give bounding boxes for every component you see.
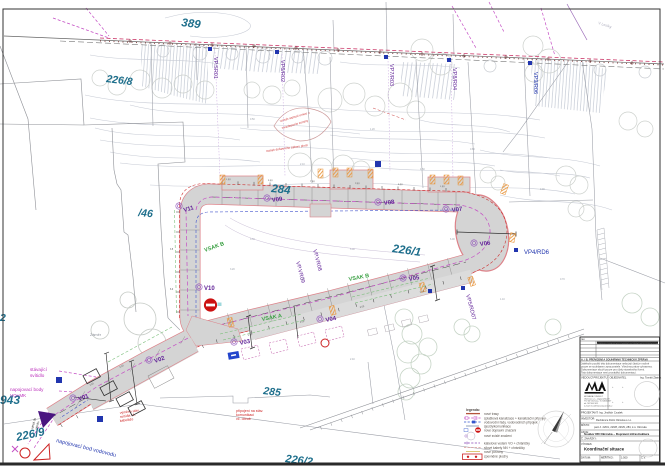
- svg-text:rev.: rev.: [581, 337, 585, 341]
- svg-text:svítidlo: svítidlo: [30, 373, 45, 378]
- svg-text:VÝKRES:: VÝKRES:: [581, 442, 593, 446]
- svg-text:VP4/RD6: VP4/RD6: [524, 250, 550, 256]
- svg-text:V10: V10: [204, 286, 215, 292]
- svg-text:0.50: 0.50: [250, 118, 255, 121]
- svg-text:DATUM:: DATUM:: [581, 456, 591, 460]
- svg-text:1.10: 1.10: [500, 298, 505, 301]
- svg-text:legenda:: legenda:: [466, 408, 480, 412]
- svg-text:Záměr: Záměr: [90, 333, 102, 337]
- svg-text:Koordinační situace: Koordinační situace: [584, 447, 625, 452]
- svg-text:284: 284: [270, 183, 292, 197]
- svg-text:2.10: 2.10: [300, 163, 305, 166]
- svg-text:PROJEKTANT: Ing. Jindřich Czu: PROJEKTANT: Ing. Jindřich Czudek: [581, 411, 623, 415]
- svg-text:1.20: 1.20: [370, 128, 375, 131]
- svg-text:Rezidence Dolní Okrovka s.r.o.: Rezidence Dolní Okrovka s.r.o.: [596, 418, 632, 422]
- svg-text:MÍSTO:: MÍSTO:: [581, 423, 590, 427]
- svg-text:e-mail: mco@moraviaconsult.cz: e-mail: mco@moraviaconsult.cz: [584, 405, 612, 408]
- svg-text:napojovací body: napojovací body: [10, 387, 44, 392]
- svg-text:2.40: 2.40: [350, 358, 355, 361]
- svg-text:parc.č. 226/1, 226/8, 226/9, 2: parc.č. 226/1, 226/8, 226/9, 284, k.ú. O…: [594, 425, 647, 429]
- svg-text:OBJEDNATEL: OBJEDNATEL: [610, 376, 627, 380]
- svg-text:1.50: 1.50: [420, 168, 425, 171]
- svg-text:0.70: 0.70: [560, 278, 565, 281]
- svg-text:389: 389: [181, 17, 202, 31]
- svg-text:6.00: 6.00: [450, 238, 455, 241]
- svg-text:nové svislé značení: nové svislé značení: [484, 434, 512, 438]
- svg-text:0.90: 0.90: [540, 188, 545, 191]
- svg-text:VEDOUCÍ PROJEKTU: VEDOUCÍ PROJEKTU: [581, 376, 608, 380]
- svg-text:Ing. Tomáš Zlatník: Ing. Tomáš Zlatník: [640, 376, 662, 380]
- svg-text:/46: /46: [137, 207, 154, 220]
- svg-text:285: 285: [262, 385, 282, 399]
- svg-text:Soubor RD Okrovka – Dopravní i: Soubor RD Okrovka – Dopravní infrastrukt…: [584, 432, 650, 436]
- svg-text:VP.SR01: VP.SR01: [212, 57, 218, 79]
- svg-text:VP6/R02: VP6/R02: [279, 60, 285, 82]
- svg-text:3.20: 3.20: [230, 268, 235, 271]
- svg-text:vč. obrub: vč. obrub: [236, 417, 251, 421]
- svg-text:kabelové vedení VO + chráničky: kabelové vedení VO + chráničky: [484, 441, 530, 445]
- svg-text:VP7/R03: VP7/R03: [388, 64, 394, 86]
- svg-text:VP9/R06: VP9/R06: [532, 72, 538, 94]
- svg-text:zpevněné plochy: zpevněné plochy: [484, 455, 508, 459]
- svg-text:0.80: 0.80: [470, 148, 475, 151]
- svg-text:Tato dokumentace není prováděc: Tato dokumentace není prováděcí dokument…: [581, 371, 637, 375]
- svg-text:VP8/R04: VP8/R04: [451, 68, 457, 90]
- svg-text:INVESTOR:: INVESTOR:: [581, 417, 595, 421]
- svg-text:stávající: stávající: [30, 367, 48, 372]
- svg-text:nové povrchy: nové povrchy: [484, 450, 503, 454]
- svg-text:nové dopravní značení: nové dopravní značení: [484, 429, 516, 433]
- svg-text:VO+MK: VO+MK: [10, 393, 27, 398]
- svg-text:1:500: 1:500: [621, 456, 628, 460]
